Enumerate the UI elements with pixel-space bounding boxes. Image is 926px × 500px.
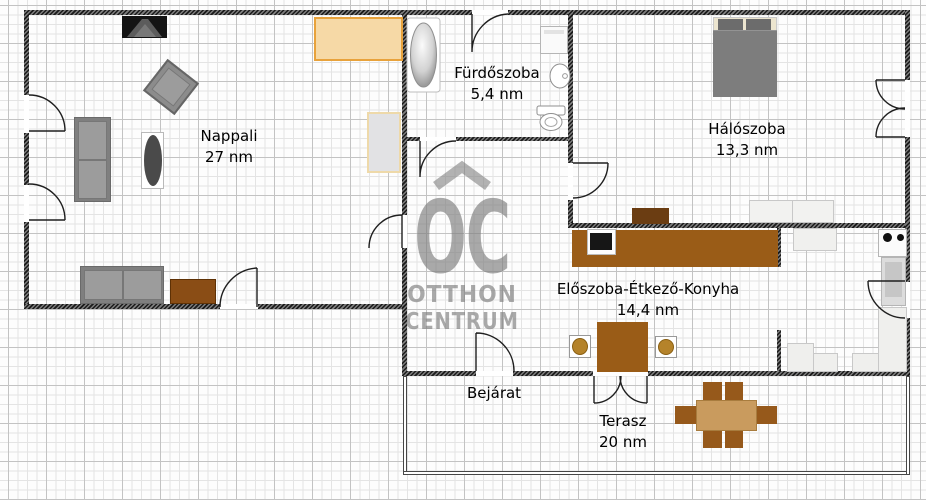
door-opening [568,163,573,200]
dresser-icon [632,208,669,224]
tv-icon [122,16,167,38]
terrace-chair-icon [725,382,743,400]
door-arc-icon [29,95,65,131]
stove-icon [878,229,907,257]
entrance-door-arc-icon [476,333,514,371]
terrace-chair-icon [675,406,696,424]
door-arc-icon [29,184,65,220]
door-arc-icon [369,215,402,248]
french-door-arc-icon [594,376,621,403]
room-area: 14,4 nm [557,300,739,321]
room-name: Nappali [201,126,258,147]
room-name: Fürdőszoba [454,63,540,84]
toilet-tank [537,106,565,115]
wardrobe-icon [367,112,401,173]
terrace-wall-left [403,376,407,475]
terrace-chair-icon [757,406,777,424]
laptop-icon [587,229,616,255]
door-opening [472,10,508,15]
french-door-arc-icon [620,376,647,403]
door-opening [476,371,513,376]
wall-left-1 [24,10,29,95]
otthon-centrum-logo: OC [414,188,510,288]
bench-divider [792,201,793,222]
door-arc-icon [420,141,456,177]
french-window-arc-icon [876,80,905,109]
terrace-wall-right [906,376,910,475]
sofa-icon [80,266,164,304]
otthon-centrum-logo-line1: OTTHON [407,284,517,307]
door-opening [402,215,407,248]
floor-plan: OC OTTHON CENTRUM [0,0,926,500]
door-arc-icon [472,14,508,52]
room-area: 27 nm [201,147,258,168]
room-label-furdoszoba: Fürdőszoba 5,4 nm [454,63,540,105]
wall-kitchen-partition-2 [777,330,781,371]
room-label-haloszoba: Hálószoba 13,3 nm [708,119,785,161]
room-label-terasz: Terasz 20 nm [599,411,647,453]
room-area: 5,4 nm [454,84,540,105]
door-opening [24,95,29,133]
terrace-chair-icon [703,430,722,448]
wall-bathroom-bedroom-1 [568,10,573,163]
kitchen-counter-icon [813,353,838,372]
door-arc-icon [220,268,257,307]
cabinet-icon [170,279,216,304]
bench-icon [749,200,834,223]
burner-icon [897,234,904,241]
wall-bottom-1 [402,371,476,376]
sofa-cushion [123,270,162,300]
room-label-nappali: Nappali 27 nm [201,126,258,168]
door-opening [220,304,258,309]
washing-machine-panel [544,30,564,34]
otthon-centrum-logo-line2: CENTRUM [405,311,519,334]
wall-bedroom-bottom [568,223,910,228]
armchair-icon [143,59,199,115]
wall-livingroom-bottom-2 [258,304,407,309]
room-name: Terasz [599,411,647,432]
window-opening [905,80,910,137]
room-area: 13,3 nm [708,140,785,161]
room-area: 20 nm [599,432,647,453]
wall-left-2 [24,133,29,185]
double-bed-icon [713,30,777,97]
stool-seat [658,339,674,355]
dining-table-icon [597,322,648,372]
terrace-chair-icon [725,430,743,448]
door-opening [420,137,456,141]
toilet-bowl [545,118,557,127]
bathtub-basin [411,23,437,87]
room-label-eloszoba: Előszoba-Étkező-Konyha 14,4 nm [557,279,739,321]
coffee-table-icon [144,135,162,186]
sofa-cushion [78,160,107,199]
stool-seat [572,338,588,355]
door-opening [24,185,29,222]
refrigerator-door [885,262,902,297]
wall-bathroom-bottom-1 [402,137,420,141]
armchair-cushion [151,67,190,106]
washing-machine-icon [540,26,568,54]
sofa-cushion [78,121,107,160]
sink-icon [550,64,570,88]
terrace-table-icon [696,400,757,431]
stool-icon [655,336,677,358]
sofa-icon [74,117,111,202]
door-arc-icon [573,163,608,198]
terrace-wall-bottom [403,471,910,475]
wall-livingroom-bottom-1 [24,304,220,309]
stool-icon [569,335,591,358]
room-name: Előszoba-Étkező-Konyha [557,279,739,300]
pillow-icon [718,19,743,30]
kitchen-counter-icon [793,228,837,251]
refrigerator-icon [881,257,906,306]
wall-bathroom-bottom-2 [456,137,573,141]
wall-hall-livingroom-2 [402,248,407,371]
french-window-arc-icon [876,108,905,137]
room-name: Bejárat [467,383,521,404]
room-name: Hálószoba [708,119,785,140]
laptop-screen [590,233,612,250]
sofa-cushion [84,270,123,300]
sideboard-icon [314,17,403,61]
pillow-icon [746,19,771,30]
wall-left-3 [24,222,29,309]
burner-icon [883,233,892,242]
kitchen-counter-icon [787,343,814,372]
kitchen-counter-icon [878,307,907,372]
toilet-icon [540,114,562,131]
sink-drain [563,74,568,79]
room-label-bejarat: Bejárat [467,383,521,404]
terrace-chair-icon [703,382,722,400]
wall-bottom-2 [513,371,593,376]
kitchen-counter-icon [852,353,880,372]
bathtub-icon [407,18,440,92]
wall-right-1 [905,10,910,80]
